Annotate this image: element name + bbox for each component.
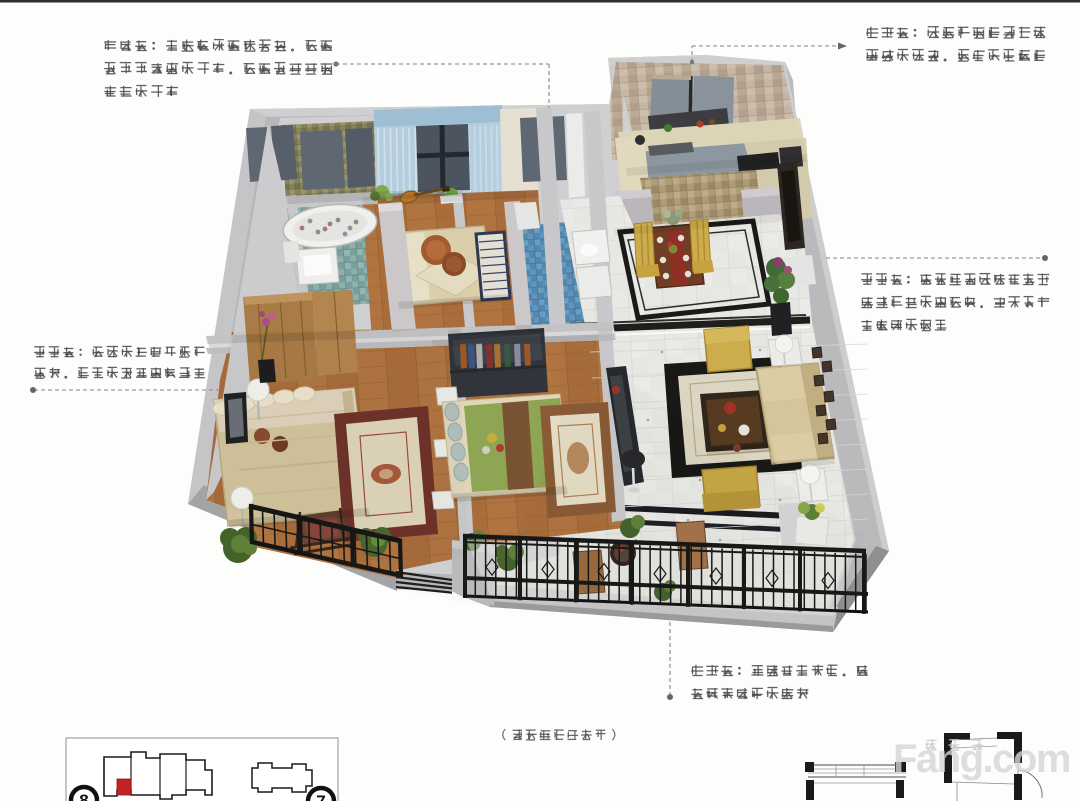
svg-text:Fang.com: Fang.com (893, 737, 1070, 781)
svg-text:8: 8 (79, 791, 88, 801)
svg-text:7: 7 (316, 792, 325, 801)
